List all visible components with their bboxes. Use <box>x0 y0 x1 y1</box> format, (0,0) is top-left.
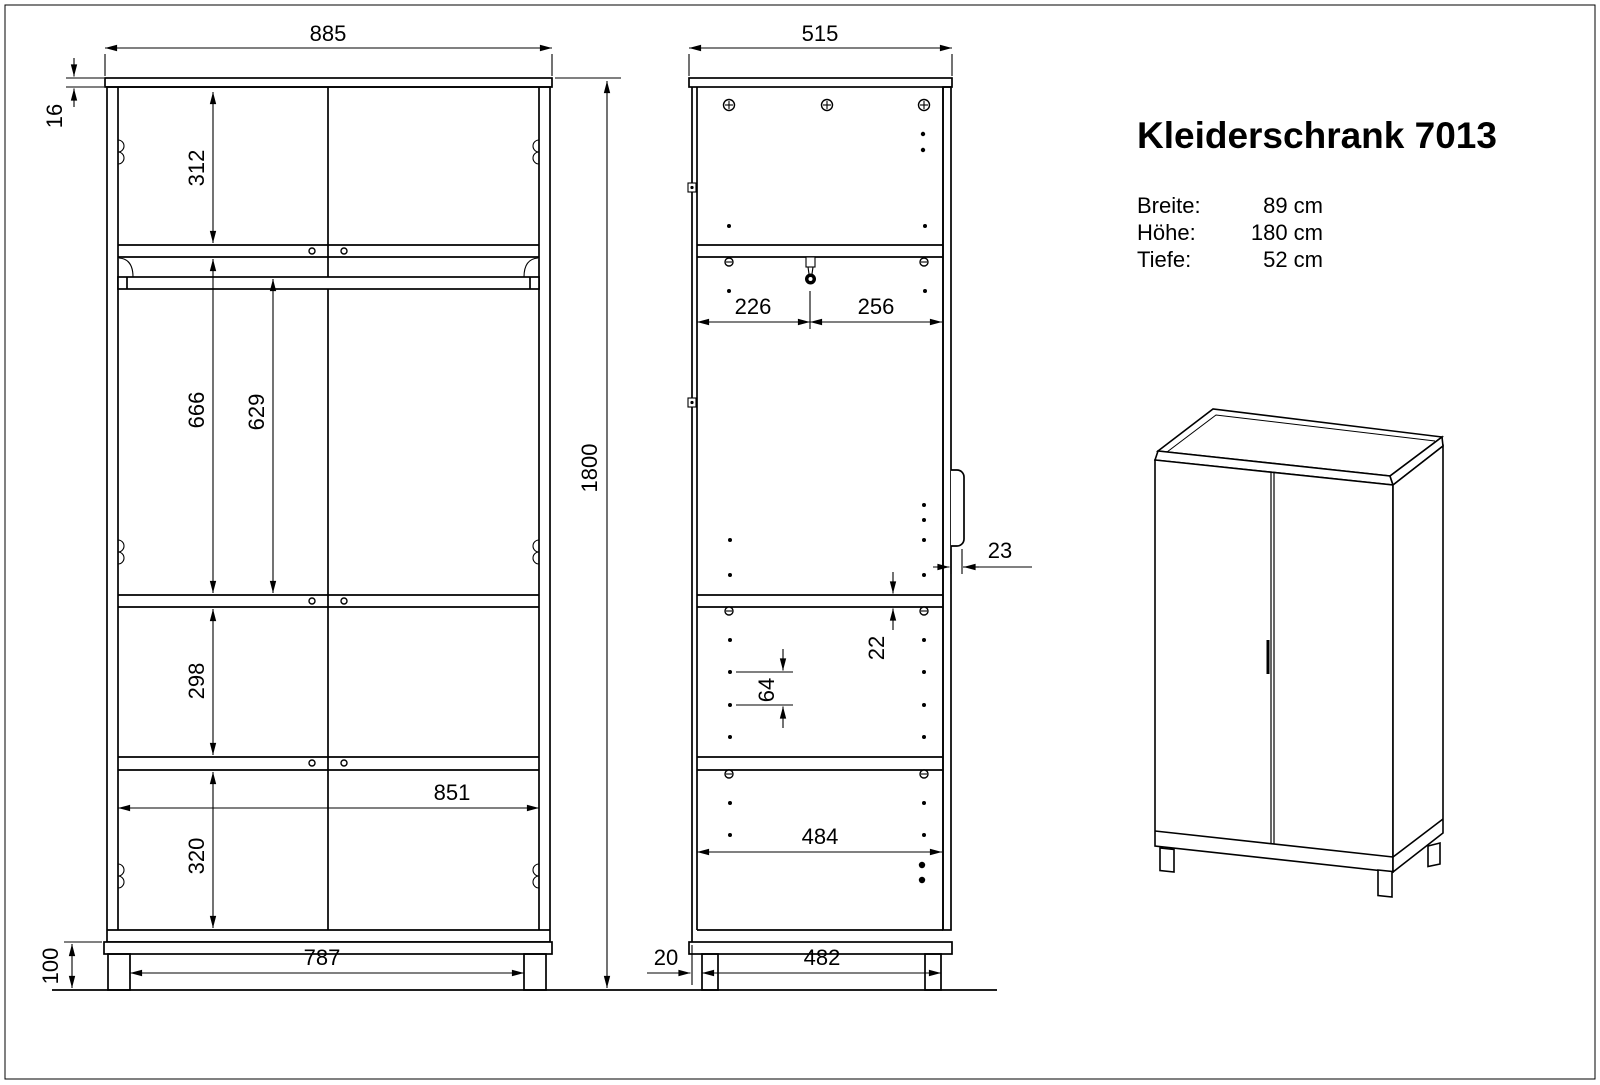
dim-side-leg-span: 482 <box>804 945 841 970</box>
isometric-view <box>1155 409 1443 897</box>
side-leg-back <box>702 954 718 990</box>
rod-bracket-icon <box>805 257 816 285</box>
side-shelf-top <box>697 245 943 257</box>
spec-value-width: 89 cm <box>1263 193 1323 218</box>
iso-leg-back-right <box>1428 843 1440 867</box>
dim-section-bottom: 320 <box>184 838 209 875</box>
door-edge <box>943 87 951 930</box>
dim-overall-width: 885 <box>310 21 347 46</box>
dim-inner-depth: 484 <box>802 824 839 849</box>
top-panel <box>105 78 552 87</box>
leg-right <box>524 954 546 990</box>
side-leg-front <box>925 954 941 990</box>
front-carcase <box>104 78 552 990</box>
spec-value-depth: 52 cm <box>1263 247 1323 272</box>
door-handle <box>951 470 964 546</box>
dim-shelf-thickness: 22 <box>864 636 889 660</box>
dim-section-hang: 666 <box>184 392 209 429</box>
spec-label-height: Höhe: <box>1137 220 1196 245</box>
iso-leg-front-right <box>1378 870 1392 897</box>
dim-rod-to-shelf: 629 <box>244 394 269 431</box>
dim-overall-height: 1800 <box>577 444 602 493</box>
iso-leg-front-left <box>1160 848 1174 872</box>
dim-plinth-height: 100 <box>38 948 63 985</box>
dim-top-thickness: 16 <box>42 104 67 128</box>
dim-handle-projection: 23 <box>988 538 1012 563</box>
dim-rod-back: 256 <box>858 294 895 319</box>
side-top-panel <box>689 78 952 87</box>
spec-label-width: Breite: <box>1137 193 1201 218</box>
rod-bracket-right <box>524 258 538 277</box>
dim-rod-front: 226 <box>735 294 772 319</box>
dim-section-middle: 298 <box>184 663 209 700</box>
technical-drawing: 885 16 312 666 629 298 320 851 <box>0 0 1600 1085</box>
dim-leg-span: 787 <box>304 945 341 970</box>
side-shelf-bottom <box>697 757 943 770</box>
side-dimensions: 515 226 256 23 22 64 484 <box>647 21 1032 985</box>
dim-leg-setback: 20 <box>654 945 678 970</box>
iso-side-face <box>1393 446 1443 872</box>
spec-value-height: 180 cm <box>1251 220 1323 245</box>
front-view: 885 16 312 666 629 298 320 851 <box>38 21 621 990</box>
rod-bracket-left <box>119 258 133 277</box>
dim-overall-depth: 515 <box>802 21 839 46</box>
side-carcase <box>688 78 964 990</box>
front-dimensions: 885 16 312 666 629 298 320 851 <box>38 21 621 988</box>
side-view: 515 226 256 23 22 64 484 <box>647 21 1032 990</box>
leg-left <box>108 954 130 990</box>
dim-hole-pitch: 64 <box>754 678 779 702</box>
dim-inner-width: 851 <box>434 780 471 805</box>
drawing-page: 885 16 312 666 629 298 320 851 <box>0 0 1600 1085</box>
side-shelf-middle <box>697 595 943 607</box>
drawing-title: Kleiderschrank 7013 <box>1137 115 1497 156</box>
dim-section-top: 312 <box>184 150 209 187</box>
spec-label-depth: Tiefe: <box>1137 247 1191 272</box>
title-block: Kleiderschrank 7013 Breite: 89 cm Höhe: … <box>1137 115 1497 272</box>
screw-icons <box>724 100 930 111</box>
